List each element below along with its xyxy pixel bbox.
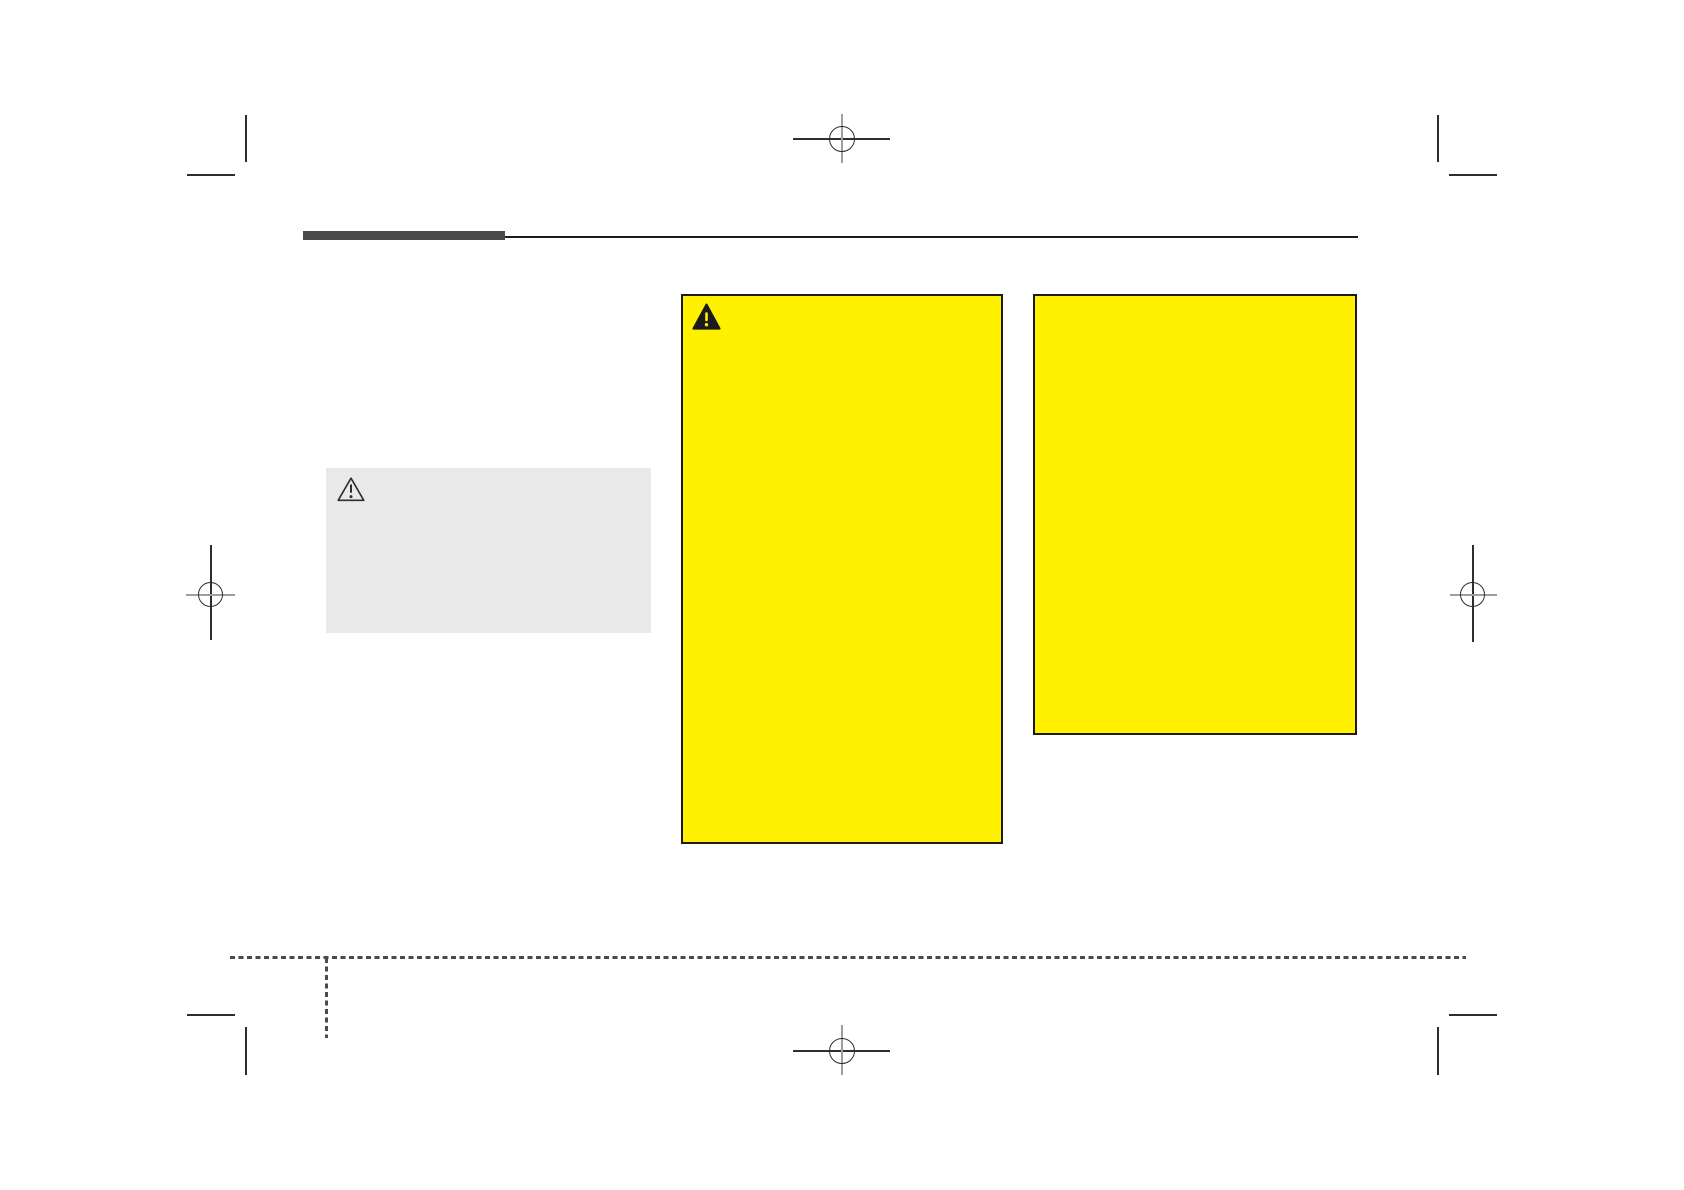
crop-mark-vertical-line <box>1437 1027 1439 1075</box>
manual-page <box>0 0 1684 1190</box>
warning-box-secondary <box>1033 294 1357 735</box>
crop-mark-horizontal-line <box>1449 174 1497 176</box>
registration-circle <box>829 1038 855 1064</box>
crop-mark-vertical-line <box>245 1027 247 1075</box>
warning-box-primary <box>681 294 1003 844</box>
dashed-guide-vertical <box>325 958 328 1038</box>
header-rule-thick-segment <box>303 231 505 240</box>
crop-mark-vertical-line <box>245 115 247 162</box>
crop-mark-horizontal-line <box>187 1014 235 1016</box>
registration-circle <box>829 126 855 152</box>
registration-circle <box>198 582 223 607</box>
warning-triangle-outline-icon <box>336 476 366 508</box>
caution-box <box>326 468 651 633</box>
crop-mark-horizontal-line <box>1449 1014 1497 1016</box>
registration-circle <box>1460 582 1485 607</box>
crop-mark-vertical-line <box>1437 115 1439 162</box>
header-rule-thin-segment <box>505 236 1358 238</box>
dashed-guide-horizontal <box>230 956 1466 959</box>
warning-triangle-filled-icon <box>692 303 721 336</box>
crop-mark-horizontal-line <box>187 174 235 176</box>
